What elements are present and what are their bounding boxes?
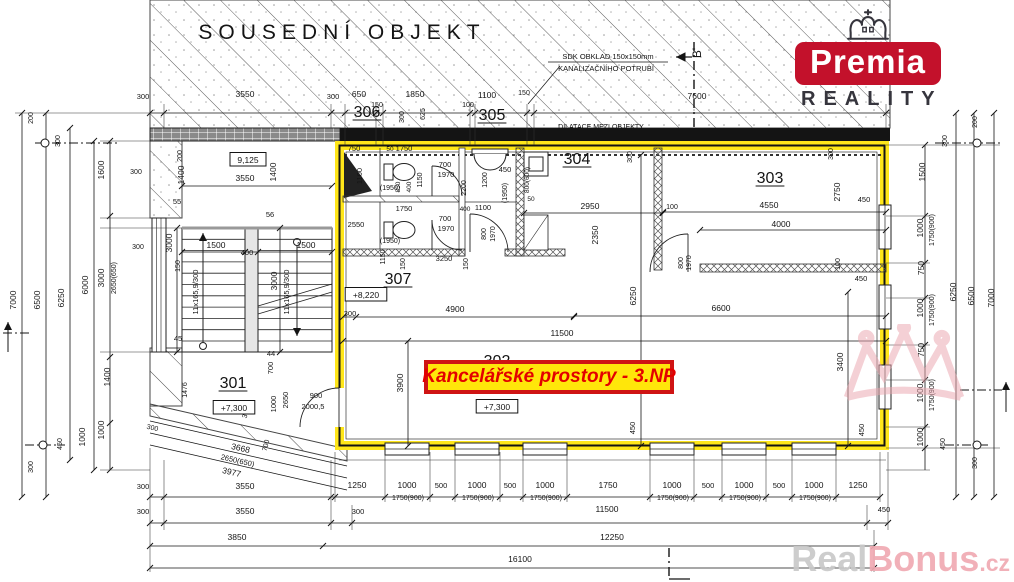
dim-text: 1750(900)	[799, 495, 831, 502]
washbasin-shelf	[472, 149, 508, 154]
dim-text: 1000	[915, 383, 925, 402]
dim-text: 150	[518, 90, 530, 97]
dim-text: 6600	[712, 303, 731, 313]
dim-text: 650	[352, 89, 366, 99]
dim-text: 1750(900)	[530, 495, 562, 502]
dim-text: 3000	[164, 233, 174, 252]
dim-text: 4900	[446, 304, 465, 314]
dim-text: 1750(900)	[929, 214, 936, 246]
dim-text: 6250	[948, 282, 958, 301]
dim-text: 800(600)	[524, 167, 531, 193]
room-306: 306	[354, 104, 381, 121]
dim-text: 3550	[236, 506, 255, 516]
dim-text: 1250	[348, 480, 367, 490]
dim-text: 1476	[182, 382, 189, 398]
dim-text: 1250	[849, 480, 868, 490]
dim-text: 1000	[735, 480, 754, 490]
dim-text: 450	[858, 195, 871, 204]
dim-text: 4000	[772, 219, 791, 229]
dim-text: 300	[344, 309, 357, 318]
level-7300-room301: +7,300	[221, 403, 248, 413]
watermark-cz: .cz	[979, 550, 1010, 576]
dim-text: 6250	[56, 288, 66, 307]
dim-text: 2650(650)	[111, 262, 118, 294]
dim-text: 300	[137, 92, 150, 101]
dim-text: 200	[972, 116, 979, 128]
wc-tank	[384, 222, 393, 238]
dim-text: 3977	[221, 465, 242, 479]
dim-text: 1000	[915, 218, 925, 237]
dim-text: 2000,5	[302, 402, 325, 411]
dim-text: 300	[132, 244, 144, 251]
dim-text: 1000	[915, 298, 925, 317]
dim-text: 1750	[599, 480, 618, 490]
dim-text: 150	[175, 260, 182, 272]
dim-text: 3850	[228, 532, 247, 542]
dim-text: 450	[857, 424, 866, 437]
dim-text: 1970	[490, 226, 497, 242]
dim-text: 450	[940, 438, 947, 450]
dim-text: 1100	[475, 203, 491, 212]
note-sdk-cladding: SDK OBKLAD 150x150mm	[562, 52, 653, 61]
dim-text: 2350	[590, 225, 600, 244]
dim-text: 150	[463, 258, 470, 270]
stair-spec: 11x165,9/300	[282, 270, 291, 315]
dim-text: 400	[406, 181, 413, 192]
dim-text: 1500	[297, 240, 316, 250]
dim-text: 1000	[398, 480, 417, 490]
dim-text: 500	[435, 481, 448, 490]
dim-text: 300	[828, 148, 835, 160]
dim-text: 11500	[550, 328, 573, 338]
dim-text: 625	[420, 108, 427, 120]
dim-text: 7000	[986, 288, 996, 307]
dim-text: 300	[137, 482, 150, 491]
dim-text: 56	[266, 210, 274, 219]
dim-text: 3550	[236, 173, 255, 183]
room-307: 307	[385, 271, 412, 288]
dim-text: 2650	[281, 392, 290, 409]
dim-text: 2200	[461, 180, 468, 196]
dim-text: 1500	[207, 240, 226, 250]
note-dilatace: DILATACE MEZI OBJEKTY	[558, 124, 644, 131]
dim-text: 300	[146, 424, 159, 433]
dim-text: 400	[460, 206, 471, 213]
dim-text: 100	[835, 258, 842, 270]
dim-text: (1950)	[380, 238, 400, 245]
dim-text: 300	[627, 151, 634, 163]
watermark-bonus: Bonus	[867, 538, 979, 579]
dim-text: 300	[327, 92, 340, 101]
dim-text: 1100	[478, 90, 497, 100]
dim-text: 1000	[805, 480, 824, 490]
dim-text: 750	[348, 144, 361, 153]
sink-inner	[529, 157, 543, 171]
logo-name: Premia	[795, 42, 941, 85]
wc-bowl	[393, 222, 415, 239]
dim-text: 3900	[395, 373, 405, 392]
dim-text: 1000	[536, 480, 555, 490]
dim-text: 1150	[380, 249, 387, 264]
dim-text: 1970	[686, 255, 693, 271]
dim-text: 450	[499, 165, 512, 174]
dim-text: 500	[702, 481, 715, 490]
dim-text: 450	[57, 438, 64, 450]
dim-text: 450	[878, 505, 891, 514]
dim-text: 2950	[581, 201, 600, 211]
dim-text: 200	[28, 112, 35, 124]
crown-icon	[842, 6, 894, 42]
dim-text: 16100	[508, 554, 532, 564]
dim-text: 300	[972, 457, 979, 469]
dim-text: 1750(900)	[392, 495, 424, 502]
dim-text: 700	[439, 214, 452, 223]
floor-unit-label-text: Kancelářské prostory - 3.NP	[422, 366, 675, 388]
dim-text: 1600	[96, 160, 106, 179]
dim-text: 1000	[468, 480, 487, 490]
dim-text: 800	[481, 228, 488, 240]
dim-text: 1100	[355, 168, 364, 184]
dim-text: 1750(900)	[657, 495, 689, 502]
dim-text: 3400	[835, 352, 845, 371]
dim-text: 1000	[663, 480, 682, 490]
dim-text: 200	[177, 150, 184, 162]
dim-text: 100	[666, 204, 678, 211]
dim-text: 1400	[176, 165, 186, 184]
partition-walls	[343, 148, 886, 272]
dim-text: 2550	[348, 220, 365, 229]
dim-text: 3550	[236, 89, 255, 99]
room-303: 303	[757, 170, 784, 187]
dim-text: 55	[173, 197, 181, 206]
dim-text: 7000	[8, 290, 18, 309]
room-305: 305	[479, 107, 506, 124]
dim-text: 850	[395, 181, 402, 192]
dim-text: 100	[462, 102, 474, 109]
dim-text: (1950)	[502, 183, 509, 203]
dim-text: 1970	[438, 170, 455, 179]
level-8220: +8,220	[353, 290, 380, 300]
level-7300-room302: +7,300	[484, 402, 511, 412]
dim-text: 700	[439, 160, 452, 169]
dim-text: 3550	[236, 481, 255, 491]
watermark-real: Real	[791, 538, 867, 579]
dim-text: 6500	[32, 290, 42, 309]
dim-text: 6000	[80, 275, 90, 294]
dim-text: 750	[916, 261, 926, 275]
dim-text: 45	[174, 334, 182, 343]
dim-text: 6500	[966, 286, 976, 305]
dim-text: 3000	[96, 268, 106, 287]
neighbor-building-label: SOUSEDNÍ OBJEKT	[198, 21, 485, 44]
dim-text: 1970	[438, 224, 455, 233]
dim-text: 1400	[268, 162, 278, 181]
dim-text: 300	[942, 135, 949, 147]
note-sewer-pipe: KANALIZAČNÍHO POTRUBÍ	[558, 64, 655, 73]
dim-text: 1750(900)	[929, 294, 936, 326]
dim-text: 6250	[628, 286, 638, 305]
dim-text: 300	[137, 507, 150, 516]
dim-text: 450	[628, 422, 637, 435]
dim-text: 3000	[269, 271, 279, 290]
dim-text: 50	[527, 196, 535, 203]
dim-text: 300	[55, 135, 62, 147]
dim-text: 300	[352, 507, 365, 516]
unit-outline-highlight	[340, 146, 885, 446]
dim-text: 750	[916, 343, 926, 357]
premia-logo: Premia REALITY	[795, 6, 941, 111]
logo-subtitle: REALITY	[795, 88, 941, 111]
dim-text: 1750	[396, 204, 413, 213]
dim-text: 450	[855, 274, 868, 283]
dim-text: 500	[504, 481, 517, 490]
dim-text: 300	[28, 461, 35, 473]
dim-text: 1850	[406, 89, 425, 99]
dim-text: 44	[267, 349, 275, 358]
room-304: 304	[564, 151, 591, 168]
dim-text: 1750(900)	[462, 495, 494, 502]
dim-text: 1400	[102, 367, 112, 386]
section-marker-b: B'	[690, 48, 704, 58]
dim-text: 1750(900)	[929, 379, 936, 411]
stair-spec: 11x165,9/300	[191, 270, 200, 315]
dim-text: 700	[266, 362, 275, 375]
party-wall	[150, 128, 890, 141]
dim-text: 50	[386, 146, 394, 153]
floorplan-page: SOUSEDNÍ OBJEKTSDK OBKLAD 150x150mmKANAL…	[0, 0, 1014, 582]
dim-text: 4550	[760, 200, 779, 210]
dim-text: 900	[310, 391, 323, 400]
dim-text: 1750(900)	[729, 495, 761, 502]
dim-text: 1000	[77, 427, 87, 446]
dim-text: 7600	[688, 91, 707, 101]
dim-text: 500	[773, 481, 786, 490]
room-301: 301	[220, 375, 247, 392]
level-9125: 9,125	[237, 155, 259, 165]
dim-text: 400	[241, 248, 254, 257]
dim-text: 3250	[436, 254, 453, 263]
dim-text: 1200	[482, 172, 489, 188]
dim-text: 1000	[915, 427, 925, 446]
dim-text: 1000	[269, 396, 278, 413]
dim-text: 1000	[96, 420, 106, 439]
watermark: RealBonus.cz	[791, 538, 1010, 580]
dim-text: 800	[678, 257, 685, 269]
dim-text: 1750	[396, 144, 413, 153]
dim-text: 12250	[600, 532, 624, 542]
dim-text: 1500	[917, 162, 927, 181]
dim-text: 1150	[417, 172, 424, 187]
wc-bowl	[393, 164, 415, 181]
wc-tank	[384, 164, 393, 180]
dim-text: 2750	[832, 182, 842, 201]
dim-text: 150	[400, 258, 407, 270]
dim-text: 300	[130, 169, 142, 176]
dim-text: 11500	[595, 504, 618, 514]
floor-unit-label: Kancelářské prostory - 3.NP	[424, 360, 674, 394]
dim-text: 300	[399, 111, 406, 123]
